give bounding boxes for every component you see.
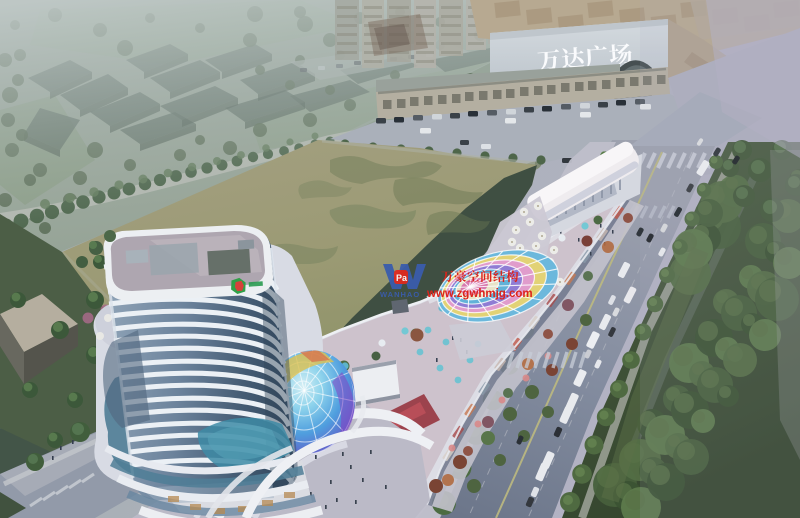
- svg-text:WANHAO: WANHAO: [380, 290, 420, 299]
- svg-text:www.zgwhmjg.com: www.zgwhmjg.com: [426, 288, 533, 300]
- svg-text:Pa: Pa: [396, 273, 408, 283]
